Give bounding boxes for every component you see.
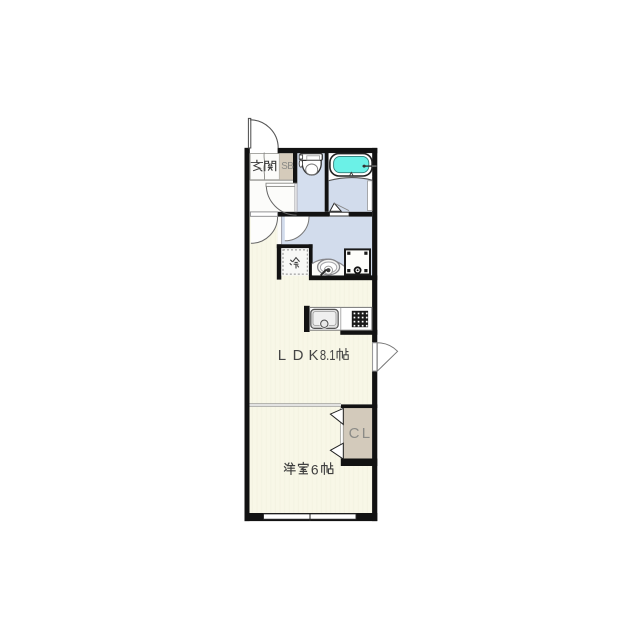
svg-text:SB: SB <box>281 161 294 172</box>
svg-text:CL: CL <box>349 425 371 442</box>
svg-text:6: 6 <box>311 462 319 477</box>
